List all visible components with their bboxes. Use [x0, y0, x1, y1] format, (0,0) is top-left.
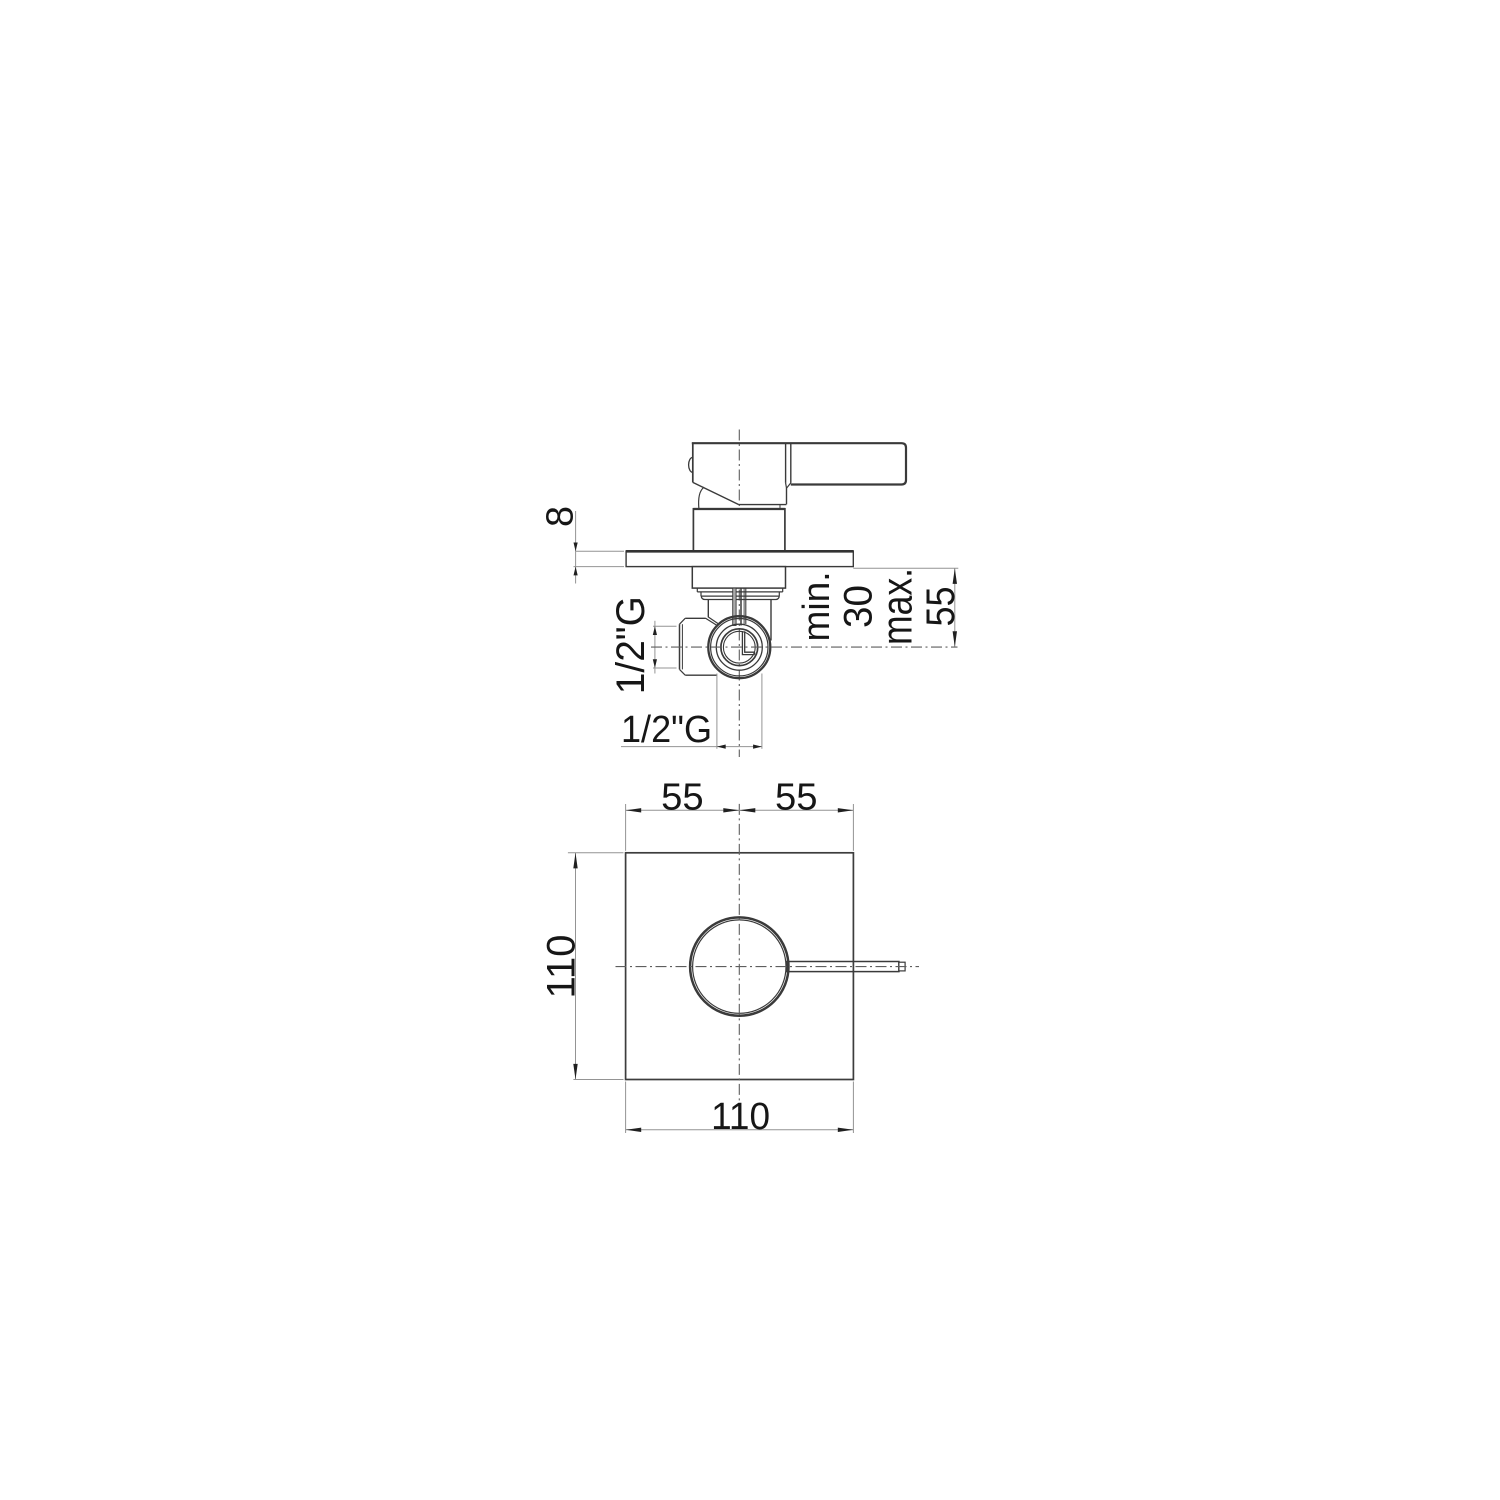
- svg-text:110: 110: [540, 935, 584, 999]
- svg-text:55: 55: [919, 587, 963, 627]
- svg-text:8: 8: [539, 506, 581, 527]
- svg-text:55: 55: [775, 776, 818, 818]
- svg-text:55: 55: [661, 776, 704, 818]
- svg-text:1/2"G: 1/2"G: [609, 596, 653, 694]
- svg-text:1/2"G: 1/2"G: [621, 709, 712, 751]
- svg-text:max.: max.: [874, 568, 922, 645]
- svg-text:min.: min.: [796, 572, 838, 642]
- svg-text:110: 110: [711, 1096, 770, 1138]
